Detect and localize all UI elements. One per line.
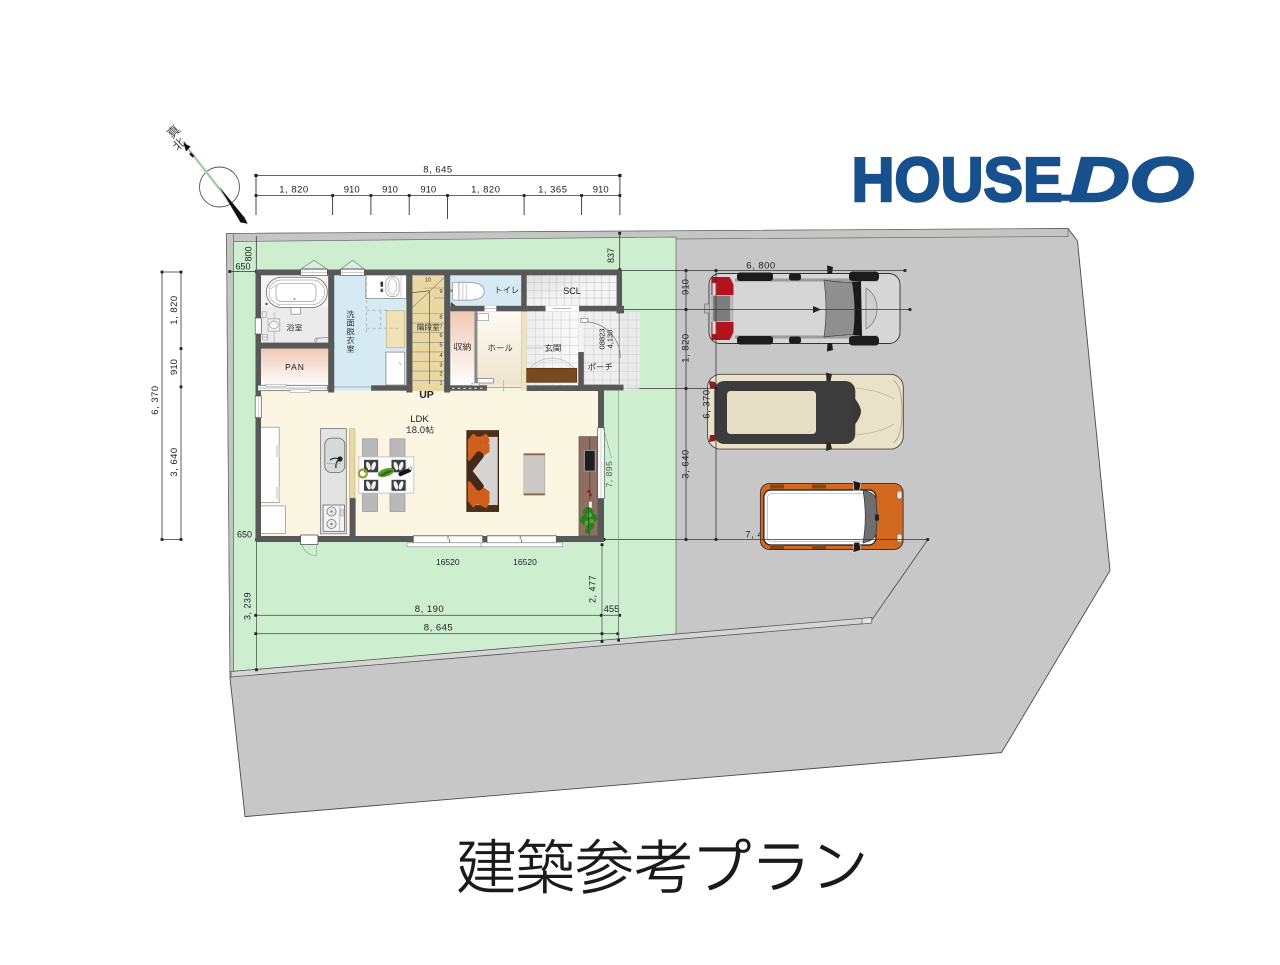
svg-text:UP: UP (419, 389, 434, 401)
svg-text:650: 650 (237, 530, 252, 540)
svg-text:1: 1 (439, 381, 442, 387)
svg-text:SCL: SCL (563, 286, 581, 296)
svg-text:7: 7 (439, 325, 442, 331)
svg-text:650: 650 (235, 262, 250, 272)
svg-text:16520: 16520 (513, 557, 537, 567)
svg-text:8, 645: 8, 645 (423, 165, 452, 176)
svg-text:DO: DO (1070, 146, 1194, 215)
svg-text:6, 370: 6, 370 (150, 385, 161, 414)
svg-text:1, 820: 1, 820 (279, 185, 308, 196)
svg-text:3, 640: 3, 640 (169, 447, 180, 476)
svg-text:1, 820: 1, 820 (471, 185, 500, 196)
svg-text:1, 820: 1, 820 (169, 295, 180, 324)
svg-text:837: 837 (606, 248, 616, 263)
svg-text:7, 895: 7, 895 (604, 461, 614, 488)
svg-text:8, 190: 8, 190 (415, 604, 444, 615)
svg-text:4: 4 (439, 353, 442, 359)
svg-text:HOUSE: HOUSE (852, 146, 1063, 215)
svg-text:800: 800 (244, 246, 254, 261)
svg-text:9: 9 (439, 289, 442, 295)
svg-text:910: 910 (382, 185, 398, 196)
svg-text:3: 3 (439, 363, 442, 369)
svg-text:16520: 16520 (436, 557, 460, 567)
svg-text:2: 2 (439, 372, 442, 378)
svg-text:8: 8 (439, 315, 442, 321)
svg-text:3, 239: 3, 239 (243, 592, 253, 620)
svg-text:LDK: LDK (410, 414, 429, 425)
svg-text:8, 645: 8, 645 (424, 623, 453, 634)
svg-text:4,130: 4,130 (606, 330, 615, 349)
svg-text:10: 10 (425, 278, 431, 284)
svg-text:910: 910 (344, 185, 360, 196)
svg-text:910: 910 (169, 359, 180, 375)
svg-text:PAN: PAN (285, 362, 305, 372)
svg-text:910: 910 (593, 185, 609, 196)
svg-text:6, 370: 6, 370 (702, 389, 713, 418)
svg-text:910: 910 (420, 185, 436, 196)
svg-text:5: 5 (439, 343, 442, 349)
svg-text:455: 455 (604, 604, 620, 615)
svg-text:2, 477: 2, 477 (588, 575, 598, 603)
svg-text:6: 6 (439, 333, 442, 339)
svg-text:1, 365: 1, 365 (538, 185, 567, 196)
svg-text:6, 800: 6, 800 (746, 261, 775, 272)
